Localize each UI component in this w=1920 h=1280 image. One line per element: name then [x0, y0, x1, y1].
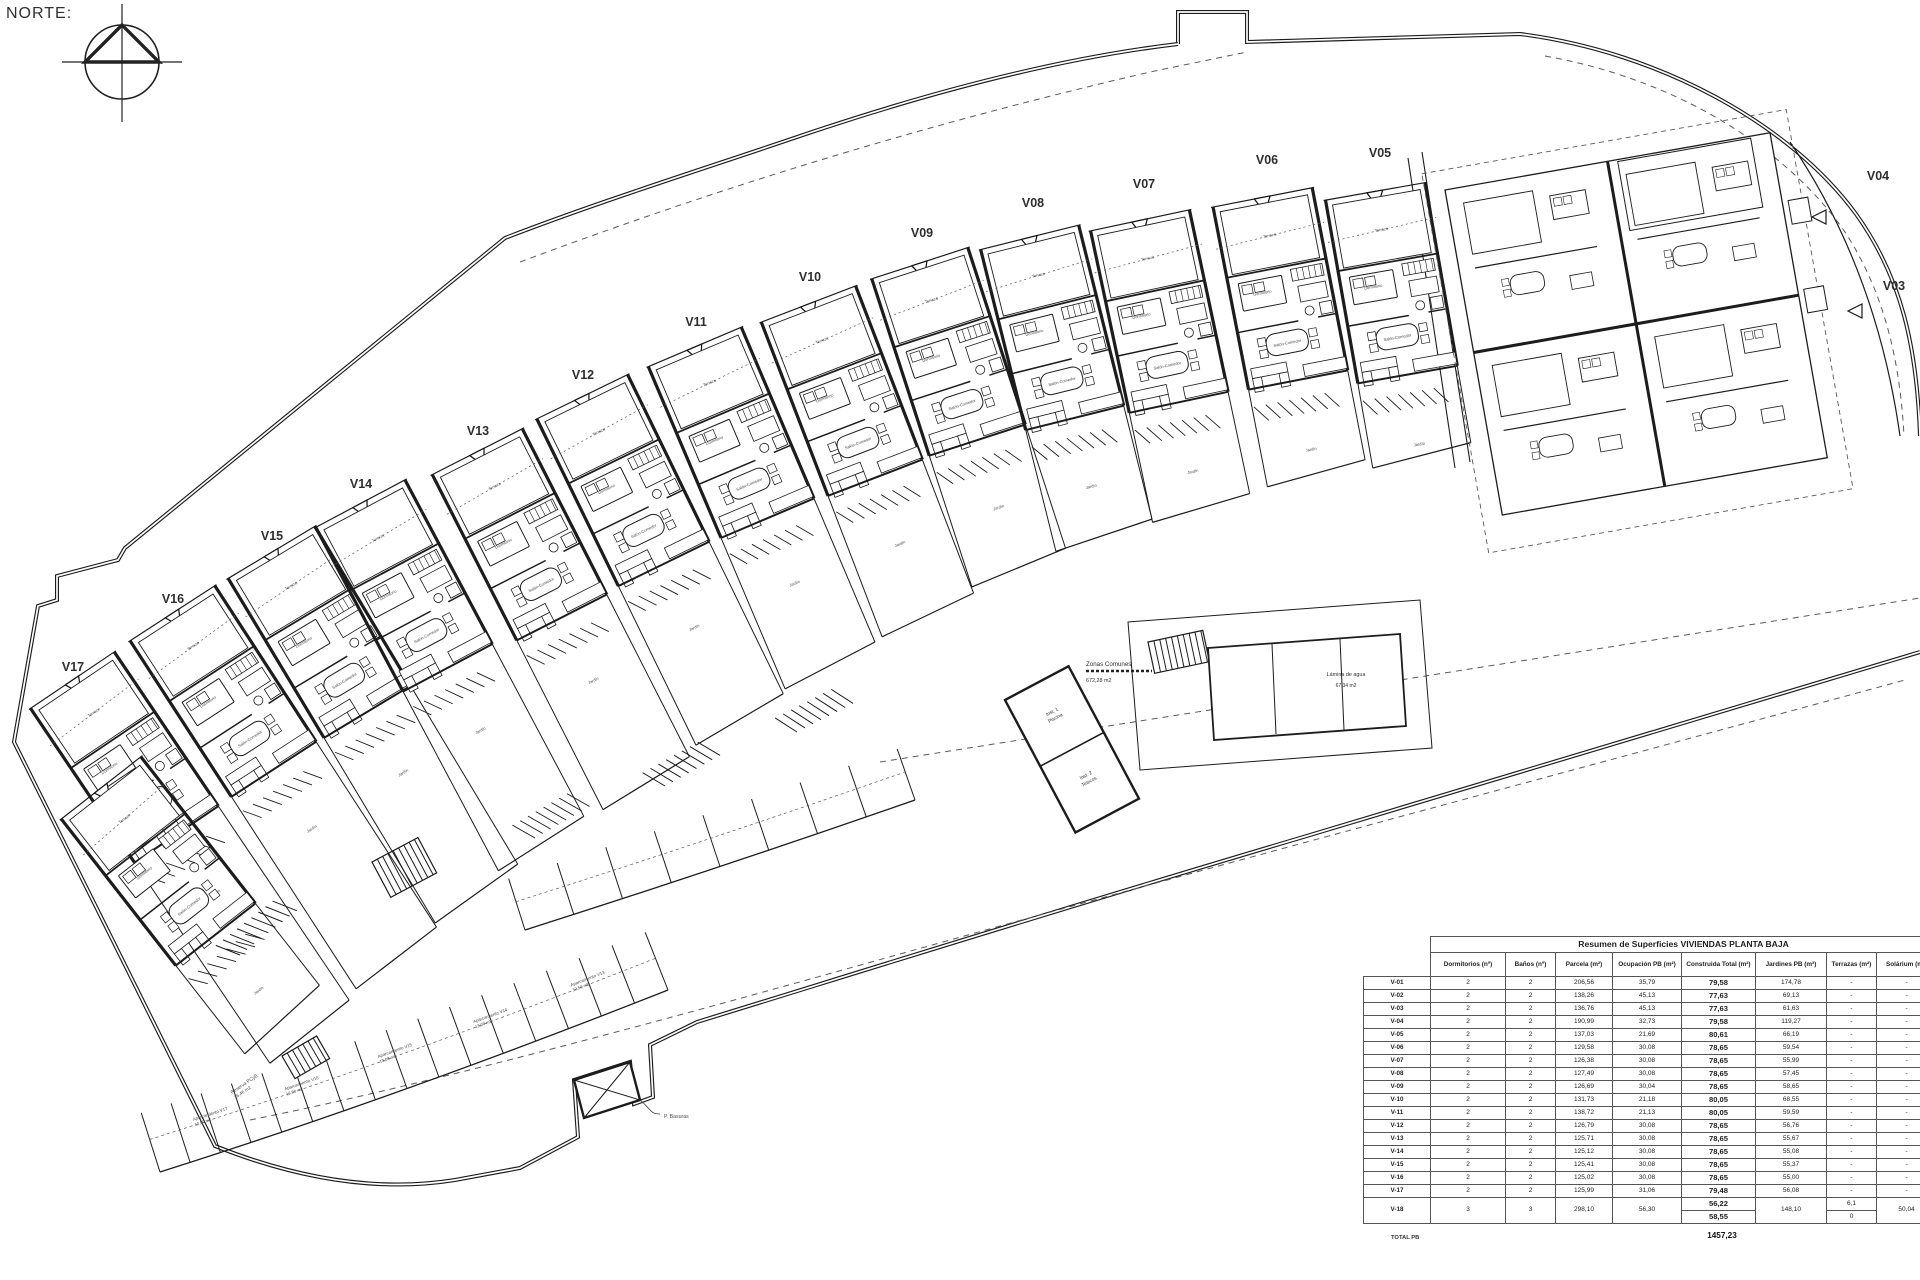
villa-label-V04: V04	[1867, 169, 1889, 183]
parking-stall-label: Aparcamiento V1513,08 m2	[377, 1042, 415, 1064]
garden-terrace-hatch	[1055, 438, 1071, 456]
villa-label-V17: V17	[62, 660, 84, 674]
table-cell: -	[1827, 977, 1877, 990]
table-cell: 30,08	[1613, 1055, 1682, 1068]
bathtub-icon	[966, 339, 998, 363]
table-cell: 21,18	[1613, 1094, 1682, 1107]
toilet-icon	[651, 488, 663, 500]
chair-icon	[1257, 338, 1266, 347]
villa-label-V15: V15	[261, 529, 283, 543]
kitchen-counter-icon	[1303, 357, 1347, 377]
parking-stall-label: Aparcamiento V1413,08 m2	[472, 1007, 510, 1029]
garden-terrace-hatch	[253, 798, 272, 818]
garden-terrace-hatch	[1398, 392, 1413, 410]
table-row: V-1222126,7930,0878,6556,76--	[1364, 1120, 1920, 1133]
garden-terrace-hatch	[386, 715, 405, 735]
garden-terrace-hatch	[413, 701, 431, 721]
table-row: V-1422125,1230,0878,6555,08--	[1364, 1146, 1920, 1159]
garden-terrace-hatch	[881, 490, 898, 509]
garden-side	[1228, 392, 1250, 494]
parking-stall-divider	[654, 831, 671, 882]
garden-terrace-hatch	[303, 765, 322, 785]
table-cell: 2	[1431, 1003, 1506, 1016]
table-cell: -	[1877, 1146, 1920, 1159]
table-cell: 190,99	[1556, 1016, 1613, 1029]
table-cell: 30,08	[1613, 1172, 1682, 1185]
villa-label-V14: V14	[350, 477, 372, 491]
garden-bottom	[879, 593, 976, 637]
garden-side	[618, 586, 696, 745]
table-cell: 2	[1506, 1003, 1556, 1016]
table-cell: 78,65	[1682, 1146, 1756, 1159]
villa-label-V13: V13	[467, 424, 489, 438]
strip-door-triangle	[1812, 210, 1826, 224]
table-title: Resumen de Superficies VIVIENDAS PLANTA …	[1431, 937, 1920, 953]
table-row: V-1722125,9931,0679,4856,08--	[1364, 1185, 1920, 1198]
parking-stall-divider	[262, 1073, 282, 1132]
garden-terrace-hatch	[848, 503, 865, 522]
table-cell: 56,76	[1756, 1120, 1827, 1133]
garden-bottom	[782, 642, 878, 689]
garden-terrace-hatch	[1313, 393, 1328, 411]
hatch-line	[831, 689, 853, 703]
garden-terrace-hatch	[345, 740, 364, 760]
chair-icon	[880, 434, 890, 444]
table-cell: 2	[1431, 1172, 1506, 1185]
garden-terrace-hatch	[1205, 413, 1220, 431]
hatch-line	[799, 706, 821, 720]
table-cell: 21,69	[1613, 1029, 1682, 1042]
chair-icon	[1137, 360, 1146, 369]
table-cell: 45,13	[1613, 990, 1682, 1003]
garden-terrace-hatch	[356, 734, 375, 754]
garden-side	[607, 594, 690, 756]
chair-icon	[876, 423, 886, 433]
col-jardines: Jardines PB (m²)	[1756, 953, 1827, 977]
garden-side	[176, 966, 245, 1054]
terrace-hatch	[643, 742, 720, 786]
garden-terrace-hatch	[236, 934, 255, 954]
chair-icon	[1501, 278, 1509, 286]
table-cell: 2	[1431, 1159, 1506, 1172]
sofa-arm	[1389, 366, 1400, 381]
table-cell: -	[1827, 1120, 1877, 1133]
villa-label-V05: V05	[1369, 146, 1391, 160]
bathtub-icon	[1409, 276, 1439, 297]
garden-terrace-hatch	[1325, 391, 1340, 409]
table-cell: 59,54	[1756, 1042, 1827, 1055]
garden-side	[1348, 370, 1365, 459]
table-cell: 3	[1506, 1198, 1556, 1224]
garden-side	[316, 742, 436, 927]
sofa-arm	[1133, 400, 1145, 416]
pillow-icon	[1744, 331, 1753, 340]
garden-terrace-hatch	[1254, 405, 1269, 423]
garden-terrace-hatch	[628, 596, 646, 616]
zonas-comunes-label: Zonas Comunes 672,28 m2	[1086, 661, 1152, 684]
table-row: V-1522125,4130,0878,6555,37--	[1364, 1159, 1920, 1172]
common-areas	[1128, 600, 1432, 770]
chair-icon	[1082, 365, 1092, 375]
table-cell: 21,13	[1613, 1107, 1682, 1120]
garden-side	[828, 496, 882, 637]
garden-terrace-hatch	[1301, 395, 1316, 413]
garden-side	[231, 797, 356, 989]
garden-terrace-hatch	[293, 772, 312, 792]
table-cell: 131,73	[1556, 1094, 1613, 1107]
garden-terrace-hatch	[693, 565, 711, 585]
room-label: Jardín	[788, 579, 800, 588]
table-cell: 137,03	[1556, 1029, 1613, 1042]
garden-terrace-hatch	[892, 486, 909, 505]
table-cell: -	[1877, 1042, 1920, 1055]
table-cell: 129,58	[1556, 1042, 1613, 1055]
table-cell: 30,08	[1613, 1159, 1682, 1172]
garden-terrace-hatch	[971, 457, 987, 476]
chair-icon	[365, 667, 376, 678]
garden-bottom	[1054, 519, 1154, 551]
table-row: V-0822127,4930,0878,6557,45--	[1364, 1068, 1920, 1081]
chair-icon	[1693, 412, 1701, 420]
table-cell: 78,65	[1682, 1133, 1756, 1146]
garden-terrace-hatch	[456, 678, 474, 698]
table-cell: 2	[1506, 1107, 1556, 1120]
table-cell: -	[1827, 1042, 1877, 1055]
garden-terrace-hatch	[741, 544, 758, 563]
garden-terrace-hatch	[1422, 388, 1437, 406]
table-row-label: V-14	[1364, 1146, 1431, 1159]
table-row: V-1122138,7221,1380,0559,59--	[1364, 1107, 1920, 1120]
garden-terrace-hatch	[1387, 394, 1402, 412]
table-cell: 78,65	[1682, 1120, 1756, 1133]
stairs-outline	[1148, 630, 1209, 673]
chair-icon	[1085, 376, 1095, 386]
sofa-arm	[1029, 417, 1041, 433]
table-cell: -	[1877, 1094, 1920, 1107]
toilet-icon	[252, 694, 264, 706]
hatch-line	[807, 702, 829, 716]
table-cell: -	[1877, 1029, 1920, 1042]
garden-terrace-hatch	[994, 450, 1010, 469]
table-cell: -	[1827, 1094, 1877, 1107]
chair-icon	[1188, 350, 1197, 359]
parking-stall-divider	[606, 847, 623, 898]
chair-icon	[767, 463, 777, 473]
garden-terrace-hatch	[1044, 441, 1060, 459]
wardrobe-icon	[1402, 258, 1436, 275]
table-cell: 2	[1506, 1159, 1556, 1172]
stairs	[372, 838, 437, 898]
villa-plot-V11: TerrazaDormitorioSalón-ComedorJardín	[644, 325, 883, 691]
table-cell: 55,00	[1756, 1172, 1827, 1185]
table-cell: 35,79	[1613, 977, 1682, 990]
garden-terrace-hatch	[937, 469, 953, 488]
summary-table-container: Resumen de Superficies VIVIENDAS PLANTA …	[1363, 936, 1920, 1249]
villa-plot-V18: TerrazaDormitorioSalón-ComedorJardín	[57, 754, 328, 1057]
parking-stall-divider	[800, 783, 817, 834]
table-cell: -	[1877, 1159, 1920, 1172]
table-cell: 78,65	[1682, 1042, 1756, 1055]
garden-terrace-hatch	[559, 634, 577, 654]
total-value: 1457,23	[1685, 1231, 1759, 1240]
garden-side	[814, 498, 875, 642]
garden-bottom	[1151, 494, 1251, 523]
hatch-line	[783, 714, 805, 728]
sink-icon	[772, 433, 788, 449]
table-cell: 55,67	[1756, 1133, 1827, 1146]
villa-label-V06: V06	[1256, 153, 1278, 167]
basuras-label: P. Basuras	[664, 1114, 689, 1120]
room-label: Jardín	[894, 539, 906, 548]
table-cell: 56,2258,55	[1682, 1198, 1756, 1224]
hatch-line	[237, 929, 261, 939]
chair-icon	[201, 880, 212, 891]
kitchen-counter-icon	[562, 582, 606, 612]
garden-terrace-hatch	[243, 804, 262, 824]
garden-bottom	[599, 757, 693, 810]
villa-label-V12: V12	[572, 368, 594, 382]
table-cell: 78,65	[1682, 1172, 1756, 1185]
table-cell: 79,48	[1682, 1185, 1756, 1198]
chair-icon	[1190, 361, 1199, 370]
room-label: Jardín	[1305, 446, 1317, 453]
villa-label-V07: V07	[1133, 177, 1155, 191]
table-cell: 32,73	[1613, 1016, 1682, 1029]
sink-icon	[1198, 322, 1212, 336]
table-cell: -	[1827, 1081, 1877, 1094]
table-cell: 2	[1431, 1133, 1506, 1146]
chair-icon	[660, 509, 671, 520]
north-compass-icon	[62, 4, 182, 122]
chair-icon	[1367, 332, 1376, 341]
table-cell: 79,58	[1682, 1016, 1756, 1029]
table-cell: 2	[1506, 990, 1556, 1003]
table-cell: 125,71	[1556, 1133, 1613, 1146]
table-cell: 78,65	[1682, 1081, 1756, 1094]
table-cell: 2	[1506, 1081, 1556, 1094]
hatch-line	[223, 940, 247, 950]
garden-terrace-hatch	[682, 570, 700, 590]
north-label: NORTE:	[6, 5, 72, 22]
room-label: Jardín	[474, 725, 486, 735]
strip-door-triangle	[1848, 304, 1862, 318]
table-cell: 2	[1431, 1068, 1506, 1081]
table-cell: 79,58	[1682, 977, 1756, 990]
table-cell: -	[1827, 1055, 1877, 1068]
garden-bottom	[969, 548, 1068, 587]
chair-icon	[1421, 334, 1430, 343]
chair-icon	[1530, 441, 1538, 449]
col-solarium: Solárium (m²)	[1877, 953, 1920, 977]
villa-label-V10: V10	[799, 270, 821, 284]
garden-side	[1358, 383, 1373, 468]
table-cell: -	[1827, 1016, 1877, 1029]
table-cell: 2	[1506, 1133, 1556, 1146]
garden-side	[709, 542, 783, 694]
parking-stall-divider	[418, 1019, 439, 1077]
garden-terrace-hatch	[580, 623, 598, 643]
garden-side	[721, 538, 785, 689]
garden-terrace-hatch	[1375, 397, 1390, 415]
table-cell: 77,63	[1682, 990, 1756, 1003]
garden-terrace-hatch	[206, 829, 225, 849]
garden-terrace-hatch	[477, 667, 495, 687]
toilet-icon	[869, 401, 881, 413]
table-row-label: V-07	[1364, 1055, 1431, 1068]
parking-stall-divider	[355, 1041, 376, 1099]
garden-terrace-hatch	[752, 540, 769, 559]
chair-icon	[1694, 423, 1702, 431]
garden-terrace-hatch	[537, 645, 555, 665]
table-cell: 2	[1506, 1172, 1556, 1185]
zonas-comunes-title: Zonas Comunes	[1086, 661, 1131, 668]
bathtub-icon	[1177, 303, 1208, 324]
room-label: Jardín	[1187, 468, 1199, 475]
garden-bottom	[692, 694, 786, 745]
table-title-row: Resumen de Superficies VIVIENDAS PLANTA …	[1364, 937, 1920, 953]
table-cell: -	[1827, 1068, 1877, 1081]
table-cell: -	[1827, 1159, 1877, 1172]
sink-icon	[882, 393, 898, 409]
pillow-icon	[1592, 358, 1601, 367]
table-cell: 3	[1431, 1198, 1506, 1224]
table-cell: 55,99	[1756, 1055, 1827, 1068]
terrace-hatch	[775, 689, 853, 732]
table-cell: -	[1877, 1185, 1920, 1198]
table-cell: 2	[1431, 977, 1506, 990]
chair-icon	[271, 724, 282, 735]
table-cell: 126,38	[1556, 1055, 1613, 1068]
chair-icon	[1369, 343, 1378, 352]
hatch-line	[775, 718, 797, 732]
table-cell: 30,08	[1613, 1133, 1682, 1146]
wardrobe-icon	[1290, 263, 1324, 281]
table-row: V-0122206,5635,7979,58174,78--	[1364, 977, 1920, 990]
garden-terrace-hatch	[1363, 399, 1378, 417]
table-row-label: V-11	[1364, 1107, 1431, 1120]
garden-terrace-hatch	[1090, 430, 1106, 448]
table-cell: -	[1827, 1107, 1877, 1120]
interior-wall	[1197, 335, 1216, 339]
table-cell: 56,08	[1756, 1185, 1827, 1198]
table-row: V-0222138,2645,1377,6369,13--	[1364, 990, 1920, 1003]
garden-terrace-hatch	[785, 526, 802, 545]
garden-terrace-hatch	[982, 454, 998, 473]
plan-sheet: NORTE: Aparcamiento V1712,50 m2Aparcamie…	[0, 0, 1920, 1280]
table-cell: 136,76	[1556, 1003, 1613, 1016]
chair-icon	[1664, 250, 1672, 258]
table-cell: 2	[1506, 1068, 1556, 1081]
table-cell: 30,04	[1613, 1081, 1682, 1094]
table-cell: 125,02	[1556, 1172, 1613, 1185]
chair-icon	[771, 474, 781, 484]
garden-terrace-hatch	[1278, 400, 1293, 418]
table-cell: 6,10	[1827, 1198, 1877, 1224]
sofa-arm	[1362, 371, 1373, 386]
table-cell: 78,65	[1682, 1068, 1756, 1081]
table-cell: 2	[1431, 1185, 1506, 1198]
pillow-icon	[1242, 284, 1254, 295]
east-cluster	[1422, 108, 1859, 552]
garden-terrace-hatch	[796, 521, 813, 540]
table-row: V-0422190,9932,7379,58119,27--	[1364, 1016, 1920, 1029]
table-cell: 61,63	[1756, 1003, 1827, 1016]
garden-terrace-hatch	[660, 580, 678, 600]
villa-label-V11: V11	[685, 315, 707, 329]
table-cell: 80,05	[1682, 1107, 1756, 1120]
table-cell: 78,65	[1682, 1055, 1756, 1068]
chair-icon	[1034, 389, 1044, 399]
garden-bottom	[495, 816, 588, 870]
garden-terrace-hatch	[763, 535, 780, 554]
table-cell: 30,08	[1613, 1042, 1682, 1055]
garden-terrace-hatch	[650, 586, 668, 606]
garden-terrace-hatch	[397, 709, 416, 729]
table-cell: -	[1827, 1029, 1877, 1042]
table-row-label: V-12	[1364, 1120, 1431, 1133]
garden-bottom	[431, 864, 522, 923]
hatch-line	[823, 693, 845, 707]
garden-terrace-hatch	[1266, 402, 1281, 420]
water-feature	[1208, 634, 1406, 740]
villa-label-V08: V08	[1022, 196, 1044, 210]
sink-icon	[1319, 300, 1333, 314]
table-cell: 30,08	[1613, 1068, 1682, 1081]
water-title: Lámina de agua	[1327, 672, 1366, 678]
pillow-icon	[1582, 359, 1591, 368]
garden-terrace-hatch	[263, 791, 282, 811]
toilet-icon	[758, 442, 770, 454]
interior-wall	[1318, 313, 1337, 317]
garden-side	[1457, 366, 1471, 443]
garden-side	[1249, 390, 1268, 487]
chair-icon	[264, 714, 275, 725]
table-cell: -	[1827, 990, 1877, 1003]
parking-stall-divider	[897, 749, 915, 800]
pillow-icon	[1353, 278, 1364, 289]
table-cell: 2	[1431, 1055, 1506, 1068]
garden-terrace-hatch	[774, 530, 791, 549]
chair-icon	[1259, 349, 1268, 358]
table-cell: -	[1877, 1003, 1920, 1016]
table-cell: 66,19	[1756, 1029, 1827, 1042]
chair-icon	[719, 484, 729, 494]
room-label: Jardín	[253, 985, 265, 996]
chair-icon	[563, 573, 574, 584]
parking-stall-divider	[509, 879, 525, 930]
summary-table: Resumen de Superficies VIVIENDAS PLANTA …	[1363, 936, 1920, 1224]
table-row: V-0622129,5830,0878,6559,54--	[1364, 1042, 1920, 1055]
hatch-line	[815, 698, 837, 712]
toilet-icon	[1415, 300, 1425, 310]
garden-terrace-hatch	[1289, 398, 1304, 416]
villa-label-V16: V16	[162, 592, 184, 606]
chair-icon	[665, 520, 676, 531]
reserva-label: Reserva PCyB 26,46 m2	[230, 1073, 262, 1100]
parking-stall-divider	[703, 815, 720, 866]
table-cell: -	[1827, 1146, 1877, 1159]
table-cell: 148,10	[1756, 1198, 1827, 1224]
stairs	[1148, 630, 1209, 673]
room-label: Jardín	[1085, 483, 1097, 491]
table-cell: 138,26	[1556, 990, 1613, 1003]
table-cell: 78,65	[1682, 1159, 1756, 1172]
table-cell: -	[1877, 1120, 1920, 1133]
table-row-label: V-13	[1364, 1133, 1431, 1146]
wardrobe-icon	[1169, 285, 1203, 303]
chair-icon	[985, 397, 995, 407]
chair-icon	[1032, 377, 1042, 387]
